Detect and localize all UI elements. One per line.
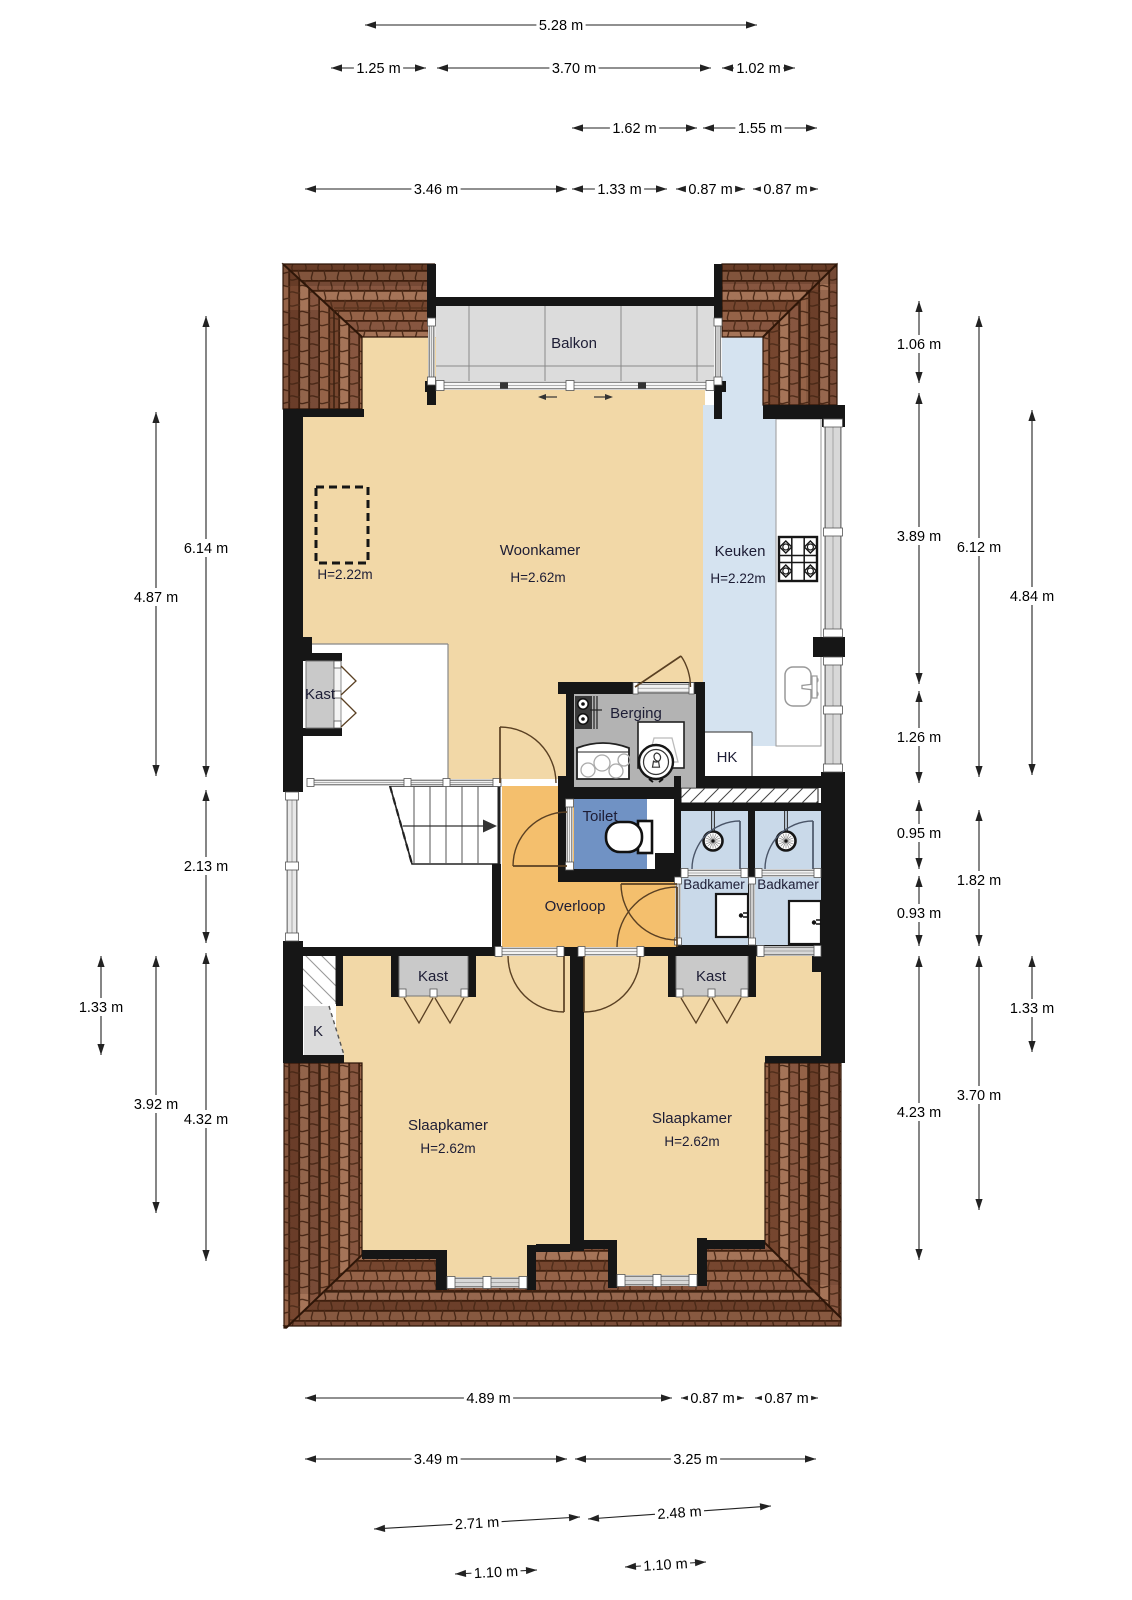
svg-text:1.62 m: 1.62 m <box>612 121 656 137</box>
svg-text:4.23 m: 4.23 m <box>897 1105 941 1121</box>
svg-text:3.49 m: 3.49 m <box>414 1452 458 1468</box>
svg-text:2.71 m: 2.71 m <box>454 1515 499 1534</box>
svg-text:3.70 m: 3.70 m <box>957 1088 1001 1104</box>
svg-text:2.48 m: 2.48 m <box>657 1504 702 1523</box>
svg-text:H=2.62m: H=2.62m <box>420 1141 475 1156</box>
svg-text:H=2.62m: H=2.62m <box>510 570 565 585</box>
svg-text:3.70 m: 3.70 m <box>552 61 596 77</box>
svg-text:H=2.62m: H=2.62m <box>664 1134 719 1149</box>
svg-text:0.95 m: 0.95 m <box>897 826 941 842</box>
svg-text:1.82 m: 1.82 m <box>957 873 1001 889</box>
svg-text:H=2.22m: H=2.22m <box>710 571 765 586</box>
svg-text:3.46 m: 3.46 m <box>414 182 458 198</box>
svg-text:6.12 m: 6.12 m <box>957 540 1001 556</box>
svg-text:1.26 m: 1.26 m <box>897 730 941 746</box>
svg-text:3.92 m: 3.92 m <box>134 1097 178 1113</box>
svg-text:Balkon: Balkon <box>551 335 597 352</box>
svg-text:Slaapkamer: Slaapkamer <box>652 1110 732 1127</box>
svg-text:0.87 m: 0.87 m <box>688 182 732 198</box>
svg-text:Badkamer: Badkamer <box>757 877 819 892</box>
svg-text:1.06 m: 1.06 m <box>897 337 941 353</box>
svg-text:4.84 m: 4.84 m <box>1010 589 1054 605</box>
svg-text:4.87 m: 4.87 m <box>134 590 178 606</box>
svg-text:1.10 m: 1.10 m <box>474 1564 519 1582</box>
svg-text:Kast: Kast <box>305 686 336 703</box>
svg-text:5.28 m: 5.28 m <box>539 18 583 34</box>
svg-text:Woonkamer: Woonkamer <box>500 542 581 559</box>
svg-text:1.33 m: 1.33 m <box>1010 1001 1054 1017</box>
svg-text:Kast: Kast <box>418 968 449 985</box>
svg-text:3.25 m: 3.25 m <box>673 1452 717 1468</box>
svg-text:Keuken: Keuken <box>715 543 766 560</box>
svg-text:H=2.22m: H=2.22m <box>317 567 372 582</box>
svg-text:1.02 m: 1.02 m <box>736 61 780 77</box>
svg-text:Slaapkamer: Slaapkamer <box>408 1117 488 1134</box>
svg-text:1.33 m: 1.33 m <box>597 182 641 198</box>
svg-text:3.89 m: 3.89 m <box>897 529 941 545</box>
svg-text:1.33 m: 1.33 m <box>79 1000 123 1016</box>
svg-text:Toilet: Toilet <box>582 808 618 825</box>
svg-text:Kast: Kast <box>696 968 727 985</box>
svg-text:Badkamer: Badkamer <box>683 877 745 892</box>
svg-text:1.10 m: 1.10 m <box>643 1556 688 1575</box>
svg-text:4.89 m: 4.89 m <box>466 1391 510 1407</box>
svg-text:1.25 m: 1.25 m <box>356 61 400 77</box>
svg-text:6.14 m: 6.14 m <box>184 541 228 557</box>
svg-text:0.87 m: 0.87 m <box>764 1391 808 1407</box>
svg-text:4.32 m: 4.32 m <box>184 1112 228 1128</box>
svg-text:0.87 m: 0.87 m <box>763 182 807 198</box>
svg-text:1.55 m: 1.55 m <box>738 121 782 137</box>
svg-text:0.87 m: 0.87 m <box>690 1391 734 1407</box>
svg-text:Overloop: Overloop <box>545 898 606 915</box>
svg-text:HK: HK <box>717 749 738 766</box>
svg-text:Berging: Berging <box>610 705 662 722</box>
svg-text:K: K <box>313 1023 323 1040</box>
svg-text:2.13 m: 2.13 m <box>184 859 228 875</box>
svg-text:0.93 m: 0.93 m <box>897 906 941 922</box>
